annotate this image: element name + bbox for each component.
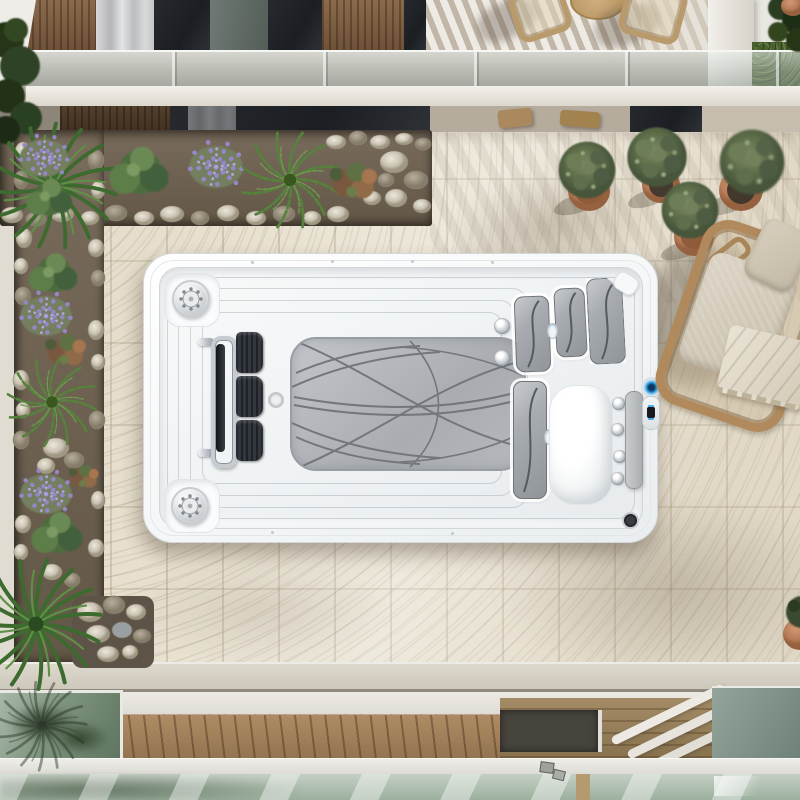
rim-screw (271, 531, 274, 534)
mat-curve-pattern (292, 339, 524, 469)
swim-jet (494, 318, 510, 334)
seat-pad (553, 287, 588, 358)
lower-slab-right (702, 106, 800, 132)
left-planter-bed (14, 130, 104, 664)
window-curtain (96, 0, 154, 52)
swim-floor-mat (290, 337, 526, 471)
oval-jet-fitting (547, 323, 558, 339)
rim-screw (251, 261, 254, 264)
window-reflection-pane (210, 0, 268, 52)
rim-screw (411, 260, 414, 263)
floor-drain (268, 392, 284, 408)
suction-fitting (622, 512, 639, 529)
swim-jet (494, 350, 510, 366)
rim-screw (331, 260, 334, 263)
black-jet-pad-stack (236, 332, 263, 466)
black-jet-pad (236, 420, 263, 461)
pad-curve (554, 288, 586, 356)
black-jet-pad (236, 332, 263, 373)
swim-spa (143, 253, 658, 543)
glass-skylight (0, 690, 123, 766)
wood-deck (118, 714, 502, 759)
black-jet-pad (236, 376, 263, 417)
bottom-terrace (0, 662, 800, 800)
glass-corner-streak (714, 776, 776, 796)
wicker-lounge-chair (660, 215, 800, 415)
door-opening (404, 0, 426, 52)
lower-chair (559, 110, 600, 129)
control-screen (647, 407, 655, 418)
seat-pad (514, 295, 552, 372)
back-jet (611, 472, 624, 485)
scene-aerial-swim-spa (0, 0, 800, 800)
window-glass (154, 0, 210, 52)
skylight-plant-reflection (50, 721, 110, 755)
lower-doorway (630, 106, 702, 132)
jet-face-pattern (174, 282, 208, 316)
lower-wood-panel (60, 106, 170, 132)
lower-chair (497, 107, 533, 128)
back-jet (611, 423, 624, 436)
lower-level-band (0, 106, 800, 132)
pad-curve (515, 296, 551, 371)
back-jet (612, 397, 625, 410)
massage-jet (171, 487, 209, 525)
jet-face-pattern (173, 489, 207, 523)
spa-control-panel (642, 396, 660, 430)
rim-headrest-pad (625, 391, 643, 489)
wood-cladding-panel (322, 0, 404, 52)
building-band (0, 0, 800, 132)
balcony-fascia (26, 86, 800, 107)
lower-curtain (188, 106, 236, 132)
rim-screw (451, 532, 454, 535)
lounge-cushion (549, 385, 613, 505)
interior-dark-table (500, 710, 602, 752)
window-glass (268, 0, 322, 52)
rim-screw (491, 261, 494, 264)
massage-jet (172, 280, 210, 318)
rail-dark-panel (216, 344, 225, 452)
pad-curve (514, 382, 546, 498)
seat-pad (513, 381, 547, 499)
glass-balustrade (26, 50, 800, 89)
glass-pane-right (712, 686, 800, 762)
glass-plant-reflection (0, 774, 300, 800)
glass-post (576, 774, 590, 800)
glass-railing-bottom (0, 774, 800, 800)
